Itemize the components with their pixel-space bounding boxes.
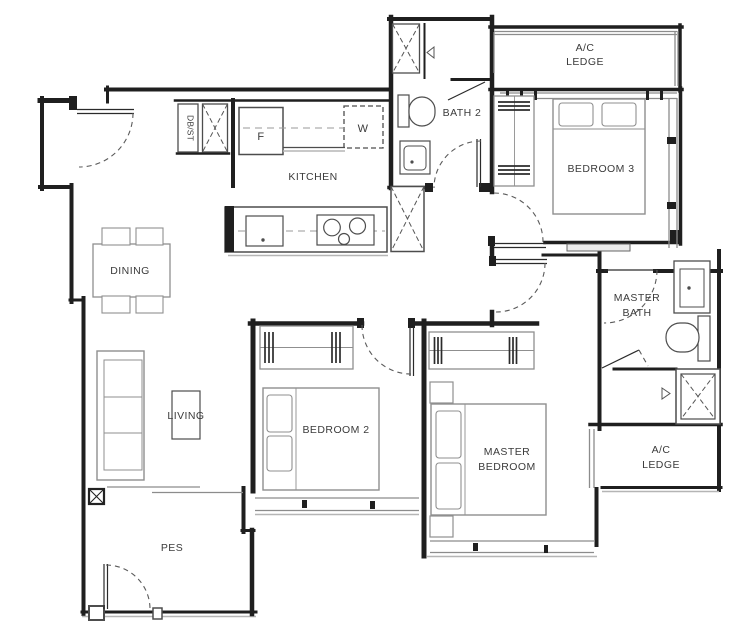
fridge-label: F — [257, 131, 264, 143]
shower-head-icon — [427, 47, 434, 58]
pes-door — [104, 564, 150, 609]
fence-post — [153, 608, 162, 619]
chair — [102, 296, 130, 313]
db-st-label: DB/ST — [186, 115, 196, 141]
ac-ledge-bottom-label-2: LEDGE — [642, 459, 680, 471]
master-bath-label: MASTER — [614, 292, 660, 304]
pillow — [602, 103, 636, 126]
pillow — [267, 436, 292, 471]
living-label: LIVING — [167, 410, 204, 422]
pillow — [436, 463, 461, 509]
dining-label: DINING — [110, 265, 149, 277]
nightstand — [430, 382, 453, 403]
shower-screen — [602, 350, 639, 368]
washer-label: W — [358, 123, 369, 135]
shower-screen — [448, 82, 485, 100]
wardrobe-master-bedroom — [429, 332, 534, 369]
floor-plan-canvas: KITCHEN DINING LIVING PES BATH 2 BEDROOM… — [0, 0, 741, 642]
master-bedroom-furniture — [429, 332, 546, 537]
basin-bath2 — [400, 141, 430, 174]
shaft-kitchen — [203, 104, 228, 152]
ac-ledge-top-label-2: LEDGE — [566, 56, 604, 68]
fence-post — [89, 606, 104, 620]
ac-ledge-top-label: A/C — [576, 42, 595, 54]
floor-plan: KITCHEN DINING LIVING PES BATH 2 BEDROOM… — [0, 0, 741, 642]
wardrobe-bedroom2 — [260, 326, 353, 369]
vanity-master-bath — [674, 261, 710, 313]
column-post — [89, 489, 104, 504]
bedroom3-door — [488, 193, 546, 248]
nightstand — [430, 516, 453, 537]
master-bedroom-label-2: BEDROOM — [478, 461, 535, 473]
bedroom2-furniture — [260, 326, 379, 490]
bath2-door — [434, 139, 481, 188]
master-bath-label-2: BATH — [622, 307, 651, 319]
hob — [317, 215, 374, 245]
bed-bedroom3 — [553, 99, 645, 214]
master-bedroom-door — [489, 256, 547, 312]
entry-door — [77, 110, 134, 168]
shaft-hall — [391, 187, 424, 252]
chair — [136, 228, 163, 245]
toilet-master-bath — [666, 316, 710, 361]
shower-head-icon — [662, 388, 670, 399]
bath2-label: BATH 2 — [443, 107, 482, 119]
bedroom3-label: BEDROOM 3 — [567, 163, 634, 175]
kitchen-sink — [246, 216, 283, 246]
toilet-bath2 — [398, 95, 435, 127]
kitchen-label: KITCHEN — [288, 171, 337, 183]
shaft-master-bath — [676, 369, 720, 424]
shower-screen-swing — [639, 350, 648, 366]
pillow — [559, 103, 593, 126]
pillow — [436, 411, 461, 458]
bedroom2-label: BEDROOM 2 — [302, 424, 369, 436]
ledge-shelf — [567, 244, 630, 251]
wardrobe-bedroom3 — [494, 96, 534, 186]
bed-bedroom2 — [263, 388, 379, 490]
bed-master-bedroom — [431, 404, 546, 515]
master-bedroom-label: MASTER — [484, 446, 530, 458]
pillow — [267, 395, 292, 432]
pes-label: PES — [161, 542, 183, 554]
shaft-bath2-top — [393, 24, 420, 73]
sofa — [97, 351, 144, 480]
chair — [102, 228, 130, 245]
ac-ledge-bottom-label: A/C — [652, 444, 671, 456]
chair — [136, 296, 163, 313]
bedroom2-door — [357, 318, 415, 376]
